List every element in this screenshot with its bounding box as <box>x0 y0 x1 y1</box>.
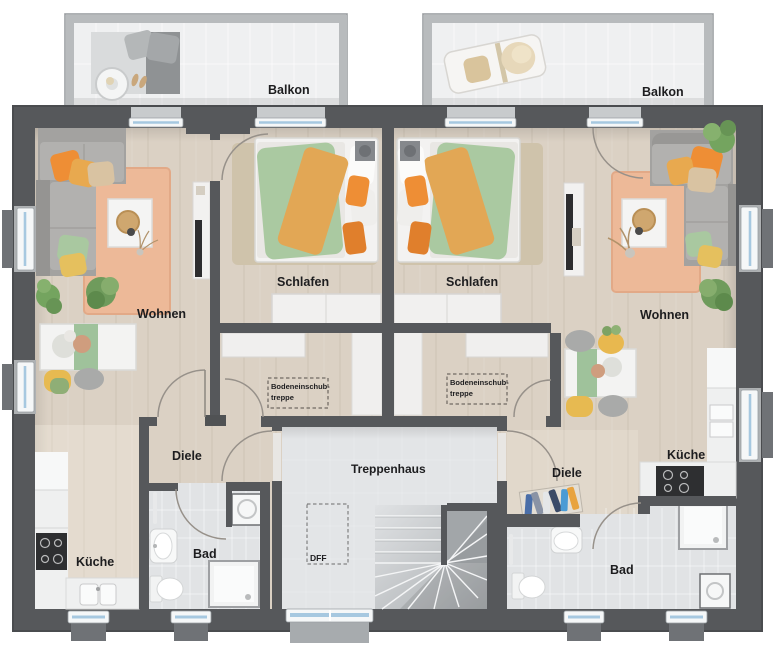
svg-text:Schlafen: Schlafen <box>277 275 329 289</box>
svg-text:DFF: DFF <box>310 553 327 563</box>
svg-text:Treppenhaus: Treppenhaus <box>351 462 426 476</box>
svg-text:Diele: Diele <box>172 449 202 463</box>
svg-text:Bodeneinschub-: Bodeneinschub- <box>450 378 509 387</box>
svg-text:treppe: treppe <box>271 393 294 402</box>
svg-text:Bodeneinschub-: Bodeneinschub- <box>271 382 330 391</box>
svg-text:Balkon: Balkon <box>268 83 310 97</box>
svg-text:treppe: treppe <box>450 389 473 398</box>
svg-text:Balkon: Balkon <box>642 85 684 99</box>
svg-text:Diele: Diele <box>552 466 582 480</box>
svg-text:Wohnen: Wohnen <box>640 308 689 322</box>
svg-text:Küche: Küche <box>76 555 114 569</box>
svg-text:Küche: Küche <box>667 448 705 462</box>
svg-text:Bad: Bad <box>193 547 217 561</box>
svg-text:Bad: Bad <box>610 563 634 577</box>
svg-text:Wohnen: Wohnen <box>137 307 186 321</box>
svg-text:Schlafen: Schlafen <box>446 275 498 289</box>
